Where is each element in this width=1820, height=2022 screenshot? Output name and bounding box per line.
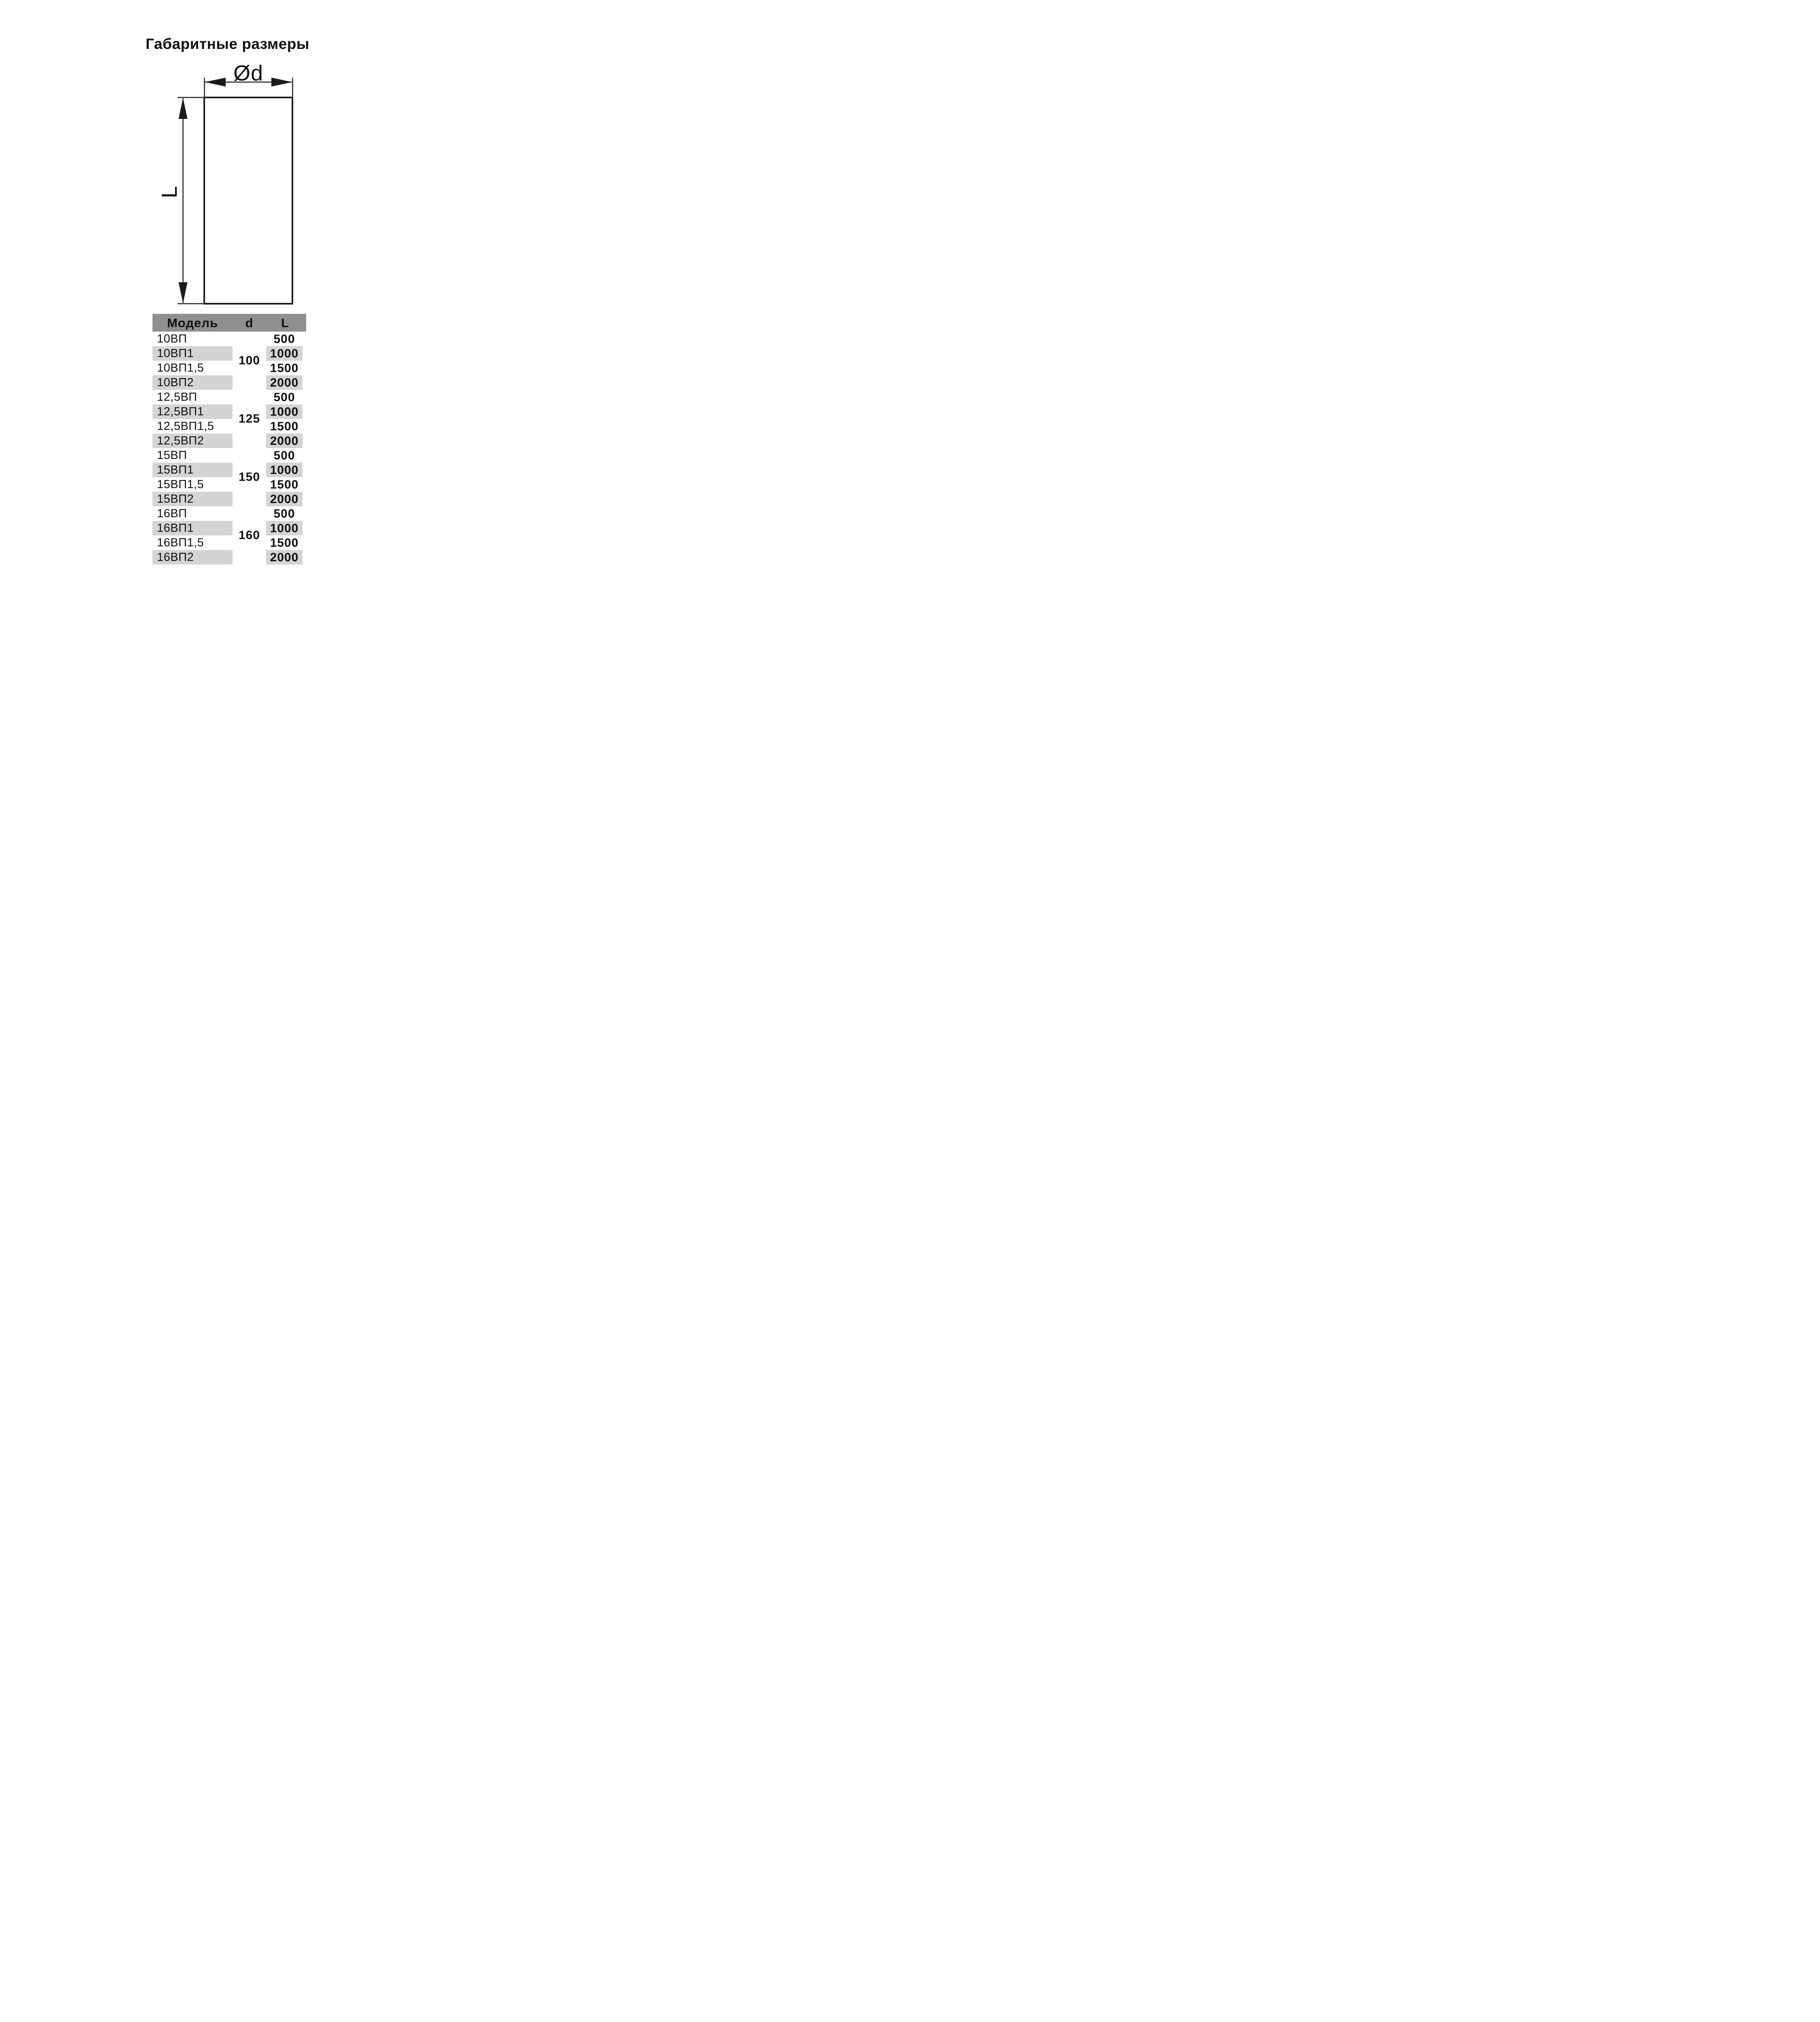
model-cell: 16ВП [152,506,233,521]
model-cell: 15ВП1,5 [152,477,233,492]
l-value-cell: 500 [266,506,303,521]
table-row: 16ВП1 1000 [152,521,306,535]
table-row: 12,5ВП2 2000 [152,434,306,448]
length-label: L [158,180,181,204]
l-value-cell: 2000 [266,550,303,565]
d-span-value: 150 [233,470,266,484]
table-row: 15ВП2 2000 [152,492,306,506]
table-row: 16ВП2 2000 [152,550,306,565]
table-row: 16ВП 500 [152,506,306,521]
d-span-value: 100 [233,353,266,368]
d-span-value: 125 [233,412,266,426]
diameter-label: Ød [222,62,275,84]
l-value-cell: 1500 [266,361,303,375]
l-value-cell: 1000 [266,404,303,419]
l-value-cell: 2000 [266,434,303,448]
model-cell: 15ВП1 [152,463,233,477]
model-cell: 10ВП2 [152,375,233,390]
model-cell: 12,5ВП2 [152,434,233,448]
table-body: 10ВП 500 10ВП1 1000 10ВП1,5 1500 10ВП2 2… [152,332,306,565]
model-cell: 15ВП2 [152,492,233,506]
length-arrow-down-icon [179,282,188,303]
model-cell: 12,5ВП1,5 [152,419,233,434]
table-row: 12,5ВП 500 [152,390,306,404]
l-value-cell: 500 [266,332,303,346]
l-value-cell: 500 [266,448,303,463]
table-row: 10ВП 500 [152,332,306,346]
length-arrow-up-icon [179,98,188,119]
header-l: L [266,314,304,332]
spec-sheet-page: Габаритные размеры Ød L Модель d L [0,0,455,607]
model-cell: 10ВП [152,332,233,346]
l-value-cell: 1000 [266,521,303,535]
header-model: Модель [152,314,233,332]
table-header: Модель d L [152,314,306,332]
table-row: 10ВП2 2000 [152,375,306,390]
d-span-value: 160 [233,528,266,543]
model-cell: 16ВП1 [152,521,233,535]
l-value-cell: 2000 [266,375,303,390]
model-cell: 16ВП2 [152,550,233,565]
l-value-cell: 1500 [266,535,303,550]
l-value-cell: 1500 [266,419,303,434]
model-cell: 12,5ВП1 [152,404,233,419]
l-value-cell: 1000 [266,463,303,477]
model-cell: 16ВП1,5 [152,535,233,550]
table-row: 15ВП1,5 1500 [152,477,306,492]
table-row: 12,5ВП1,5 1500 [152,419,306,434]
table-row: 16ВП1,5 1500 [152,535,306,550]
table-row: 10ВП1 1000 [152,346,306,361]
model-cell: 10ВП1,5 [152,361,233,375]
model-cell: 10ВП1 [152,346,233,361]
l-value-cell: 1000 [266,346,303,361]
table-row: 15ВП1 1000 [152,463,306,477]
l-value-cell: 2000 [266,492,303,506]
l-value-cell: 500 [266,390,303,404]
dimensions-table: Модель d L 10ВП 500 10ВП1 1000 10ВП1,5 1… [152,314,306,565]
header-d: d [233,314,266,332]
table-row: 15ВП 500 [152,448,306,463]
model-cell: 12,5ВП [152,390,233,404]
l-value-cell: 1500 [266,477,303,492]
table-row: 12,5ВП1 1000 [152,404,306,419]
model-cell: 15ВП [152,448,233,463]
table-row: 10ВП1,5 1500 [152,361,306,375]
